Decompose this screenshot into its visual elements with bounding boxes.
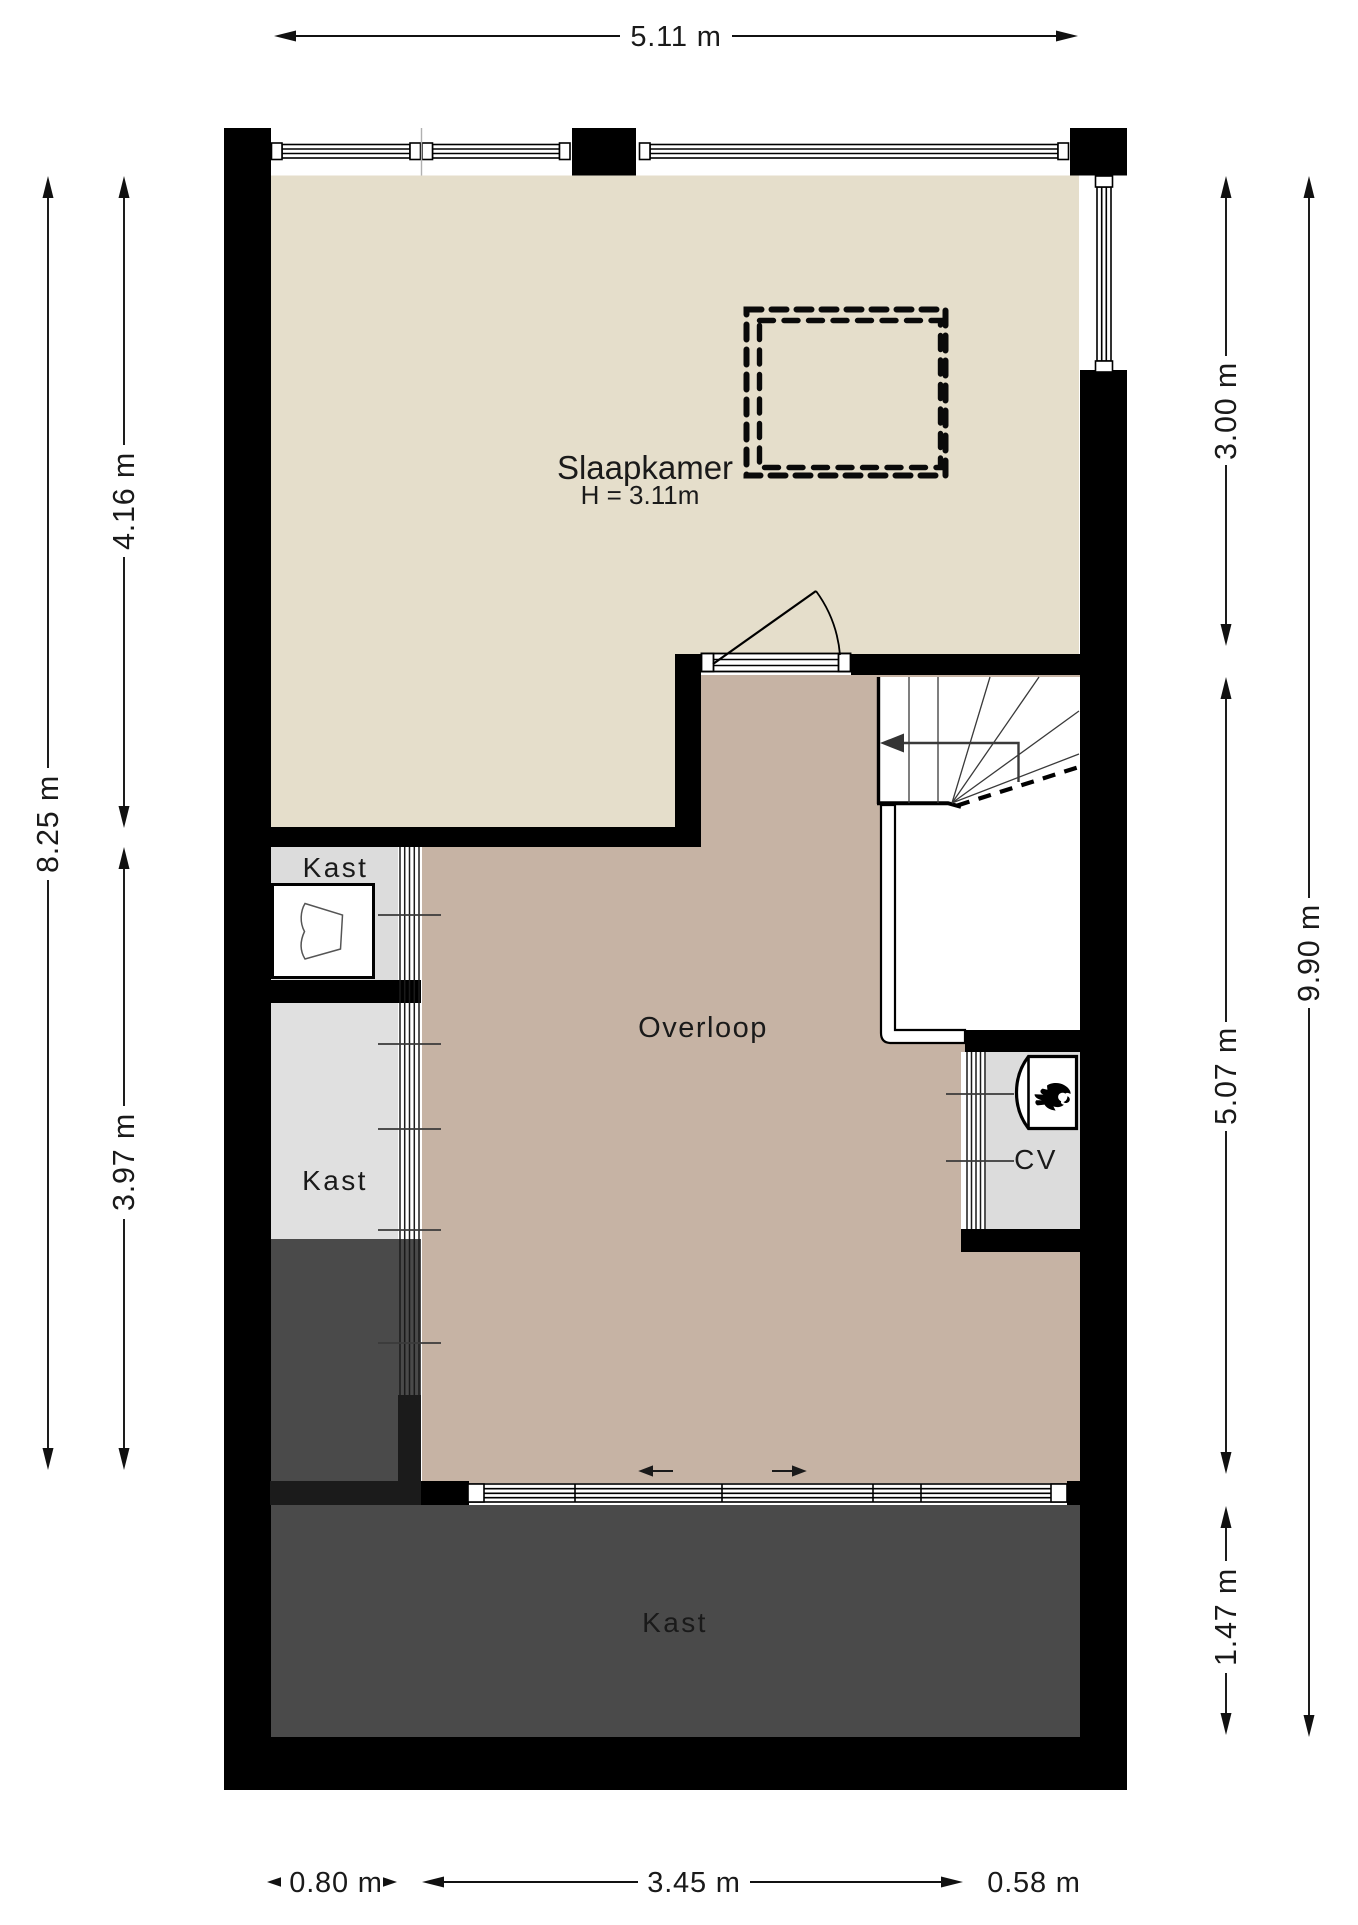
svg-text:3.97 m: 3.97 m [107, 1113, 141, 1211]
svg-text:5.07 m: 5.07 m [1209, 1027, 1243, 1125]
svg-text:Kast: Kast [303, 852, 369, 883]
svg-text:Kast: Kast [642, 1607, 708, 1638]
svg-text:0.80 m: 0.80 m [289, 1867, 382, 1899]
svg-text:4.16 m: 4.16 m [107, 452, 141, 550]
svg-text:CV: CV [1014, 1144, 1058, 1175]
svg-text:1.47 m: 1.47 m [1209, 1568, 1243, 1666]
svg-text:8.25 m: 8.25 m [31, 775, 65, 873]
svg-text:3.45 m: 3.45 m [647, 1867, 740, 1899]
svg-text:H = 3.11m: H = 3.11m [581, 480, 700, 510]
svg-text:Overloop: Overloop [638, 1012, 768, 1044]
svg-text:Kast: Kast [302, 1165, 368, 1196]
svg-text:9.90 m: 9.90 m [1292, 904, 1326, 1002]
svg-text:5.11 m: 5.11 m [630, 21, 721, 53]
svg-text:3.00 m: 3.00 m [1209, 362, 1243, 460]
svg-text:0.58 m: 0.58 m [987, 1867, 1080, 1899]
